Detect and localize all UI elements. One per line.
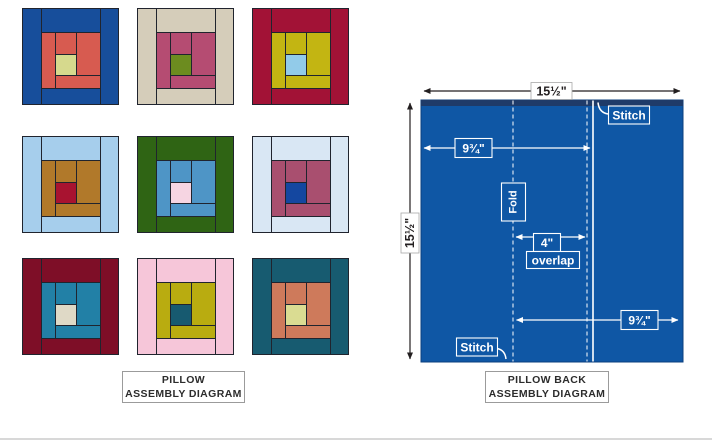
overlap-value-label: 4" <box>541 236 553 250</box>
height-dimension-label: 15½" <box>403 218 417 248</box>
top-offset-label: 9¾" <box>462 142 484 156</box>
pillow-back-diagram: 15½" 15½" 9¾" Fold 4" overlap 9¾" Stitch… <box>0 0 712 440</box>
overlap-word-label: overlap <box>532 254 575 268</box>
pillow-diagrams-page: PILLOW ASSEMBLY DIAGRAM PILLOW BACK ASSE… <box>0 0 712 440</box>
top-hem-band <box>421 100 683 106</box>
width-dimension-label: 15½" <box>536 85 566 99</box>
stitch-bottom-label: Stitch <box>460 341 493 355</box>
bottom-offset-label: 9¾" <box>628 314 650 328</box>
stitch-top-label: Stitch <box>612 109 645 123</box>
fold-label: Fold <box>508 190 520 213</box>
